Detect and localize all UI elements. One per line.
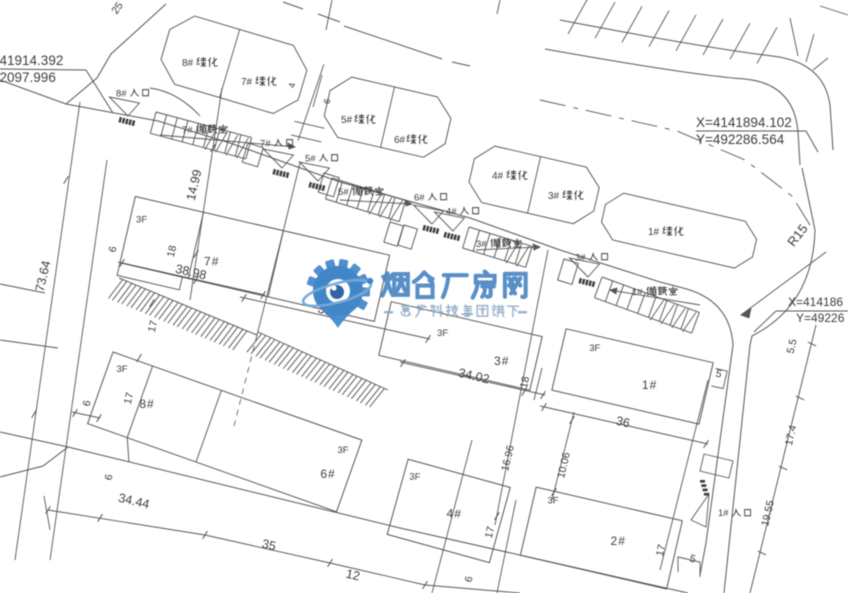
- svg-text:Y=49226: Y=49226: [796, 311, 845, 325]
- svg-text:1#: 1#: [642, 378, 657, 392]
- svg-text:3#: 3#: [476, 239, 487, 250]
- svg-text:7#: 7#: [260, 139, 271, 150]
- svg-text:1#: 1#: [648, 227, 660, 238]
- svg-text:4#: 4#: [492, 171, 504, 182]
- svg-text:8#: 8#: [139, 397, 154, 411]
- svg-text:5#: 5#: [341, 115, 353, 126]
- svg-text:6#: 6#: [394, 135, 406, 146]
- svg-text:6#: 6#: [414, 193, 425, 204]
- svg-text:X=414186: X=414186: [788, 295, 843, 309]
- svg-text:8#: 8#: [182, 58, 194, 69]
- svg-text:6#: 6#: [320, 467, 335, 481]
- svg-text:3F: 3F: [337, 445, 348, 456]
- svg-text:3F: 3F: [409, 471, 421, 482]
- svg-text:4141914.392: 4141914.392: [0, 53, 63, 68]
- svg-text:5#: 5#: [338, 187, 349, 198]
- svg-text:3#: 3#: [494, 354, 509, 368]
- svg-text:1#: 1#: [718, 508, 729, 519]
- svg-text:3F: 3F: [136, 215, 147, 226]
- svg-text:Y=492286.564: Y=492286.564: [696, 132, 785, 147]
- svg-text:3#: 3#: [548, 191, 560, 202]
- svg-text:X=4141894.102: X=4141894.102: [696, 115, 792, 130]
- svg-text:8#: 8#: [116, 89, 127, 100]
- svg-text:7#: 7#: [182, 125, 193, 136]
- svg-text:3#: 3#: [575, 253, 586, 264]
- svg-text:7#: 7#: [204, 254, 219, 268]
- svg-text:3F: 3F: [116, 364, 127, 375]
- svg-text:3F: 3F: [437, 328, 448, 339]
- svg-text:2#: 2#: [611, 534, 626, 548]
- svg-text:3F: 3F: [589, 343, 600, 354]
- svg-text:5#: 5#: [305, 154, 316, 165]
- svg-text:7#: 7#: [241, 77, 253, 88]
- svg-text:1#: 1#: [632, 287, 643, 298]
